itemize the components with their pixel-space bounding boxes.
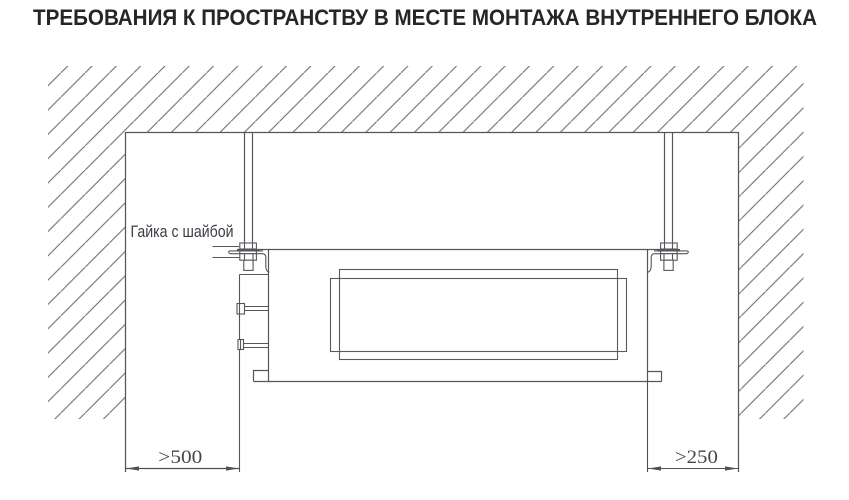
- svg-text:>250: >250: [675, 447, 718, 468]
- svg-text:Гайка с шайбой: Гайка с шайбой: [131, 222, 234, 241]
- svg-text:>500: >500: [158, 447, 202, 468]
- svg-text:ТРЕБОВАНИЯ К ПРОСТРАНСТВУ В МЕ: ТРЕБОВАНИЯ К ПРОСТРАНСТВУ В МЕСТЕ МОНТАЖ…: [33, 5, 817, 30]
